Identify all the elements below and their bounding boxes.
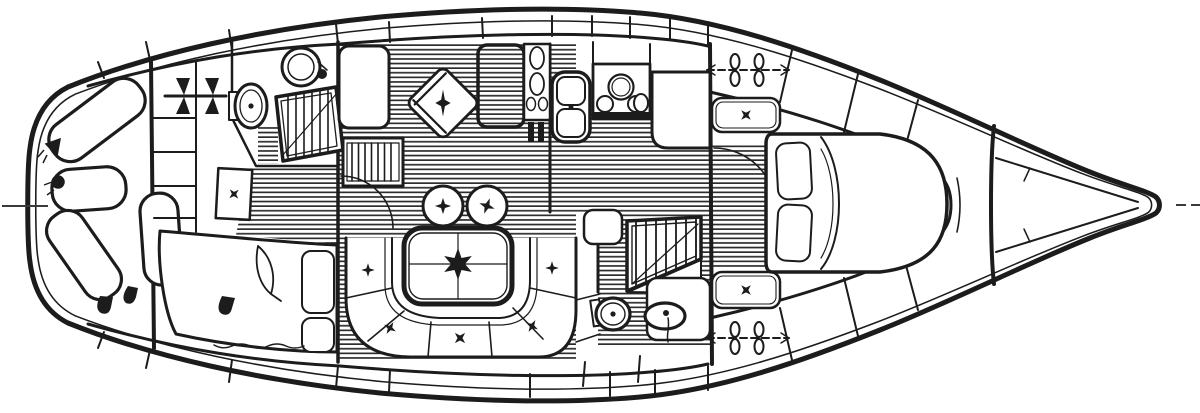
slatted-hatch	[343, 138, 403, 186]
fwd-head-sole	[258, 126, 278, 164]
seat-cushion	[712, 272, 780, 308]
aft-cabin-sole	[709, 143, 767, 269]
gimbal-fitting-icon	[634, 94, 648, 112]
toilet-icon	[590, 298, 630, 330]
pillow	[776, 142, 813, 200]
pillow	[302, 251, 334, 313]
stool-seat	[423, 186, 463, 226]
seat-cushion	[712, 98, 780, 132]
aft-double-berth	[766, 134, 947, 272]
fwd-double-berth	[159, 231, 337, 352]
pillow	[302, 318, 334, 352]
stool-seat	[467, 186, 507, 226]
dinette	[346, 228, 576, 357]
boat-floor-plan-page	[0, 0, 1200, 413]
yacht-floor-plan-diagram	[0, 0, 1200, 413]
double-sink-icon	[552, 72, 590, 142]
seat-locker	[584, 210, 622, 244]
salon-cabinet	[339, 46, 389, 128]
mirror-locker	[216, 168, 253, 220]
dinette-table	[404, 228, 512, 304]
pillow	[776, 204, 813, 262]
shower-grate-icon	[276, 87, 343, 161]
